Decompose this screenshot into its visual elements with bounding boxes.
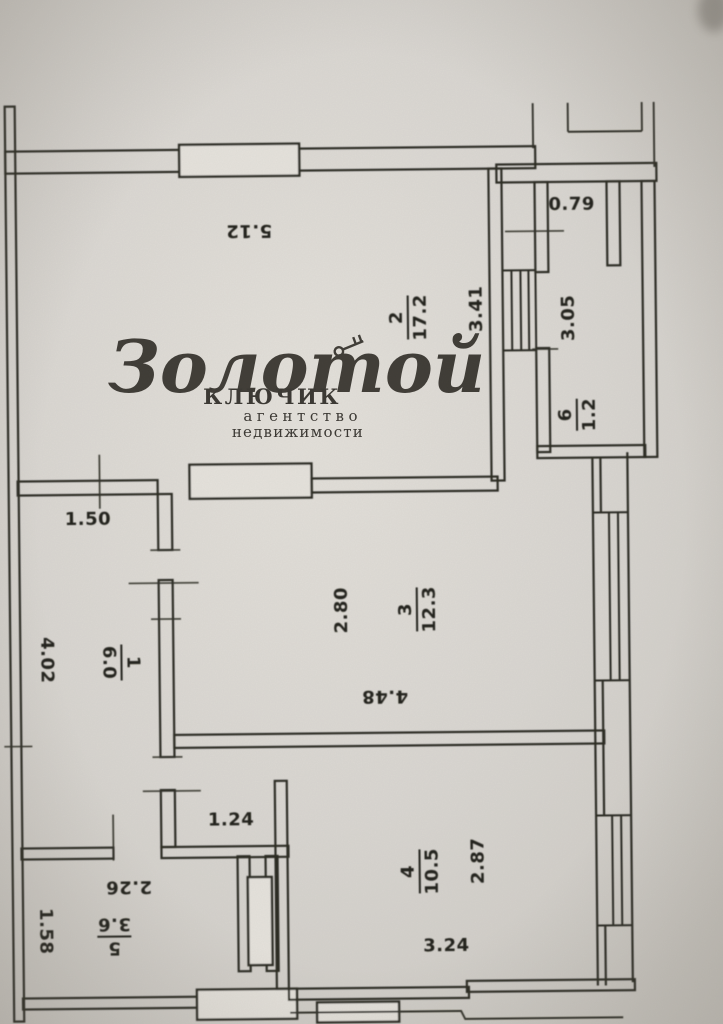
floorplan-photo: 2 17.2 6 1.2 3 12.3 1 6.0 [0, 0, 723, 1024]
floorplan-svg: 2 17.2 6 1.2 3 12.3 1 6.0 [0, 0, 723, 1024]
photo-vignette [0, 0, 723, 1024]
